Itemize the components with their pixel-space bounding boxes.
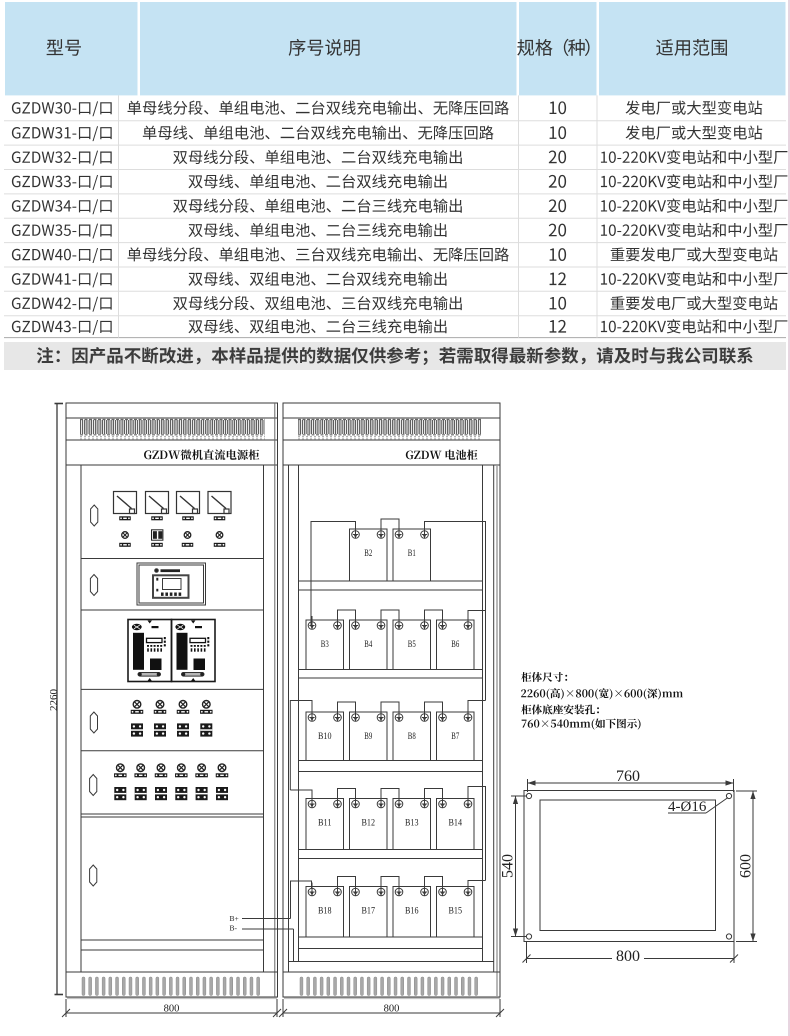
svg-text:800: 800 (164, 1004, 180, 1015)
svg-text:B5: B5 (408, 639, 416, 649)
svg-text:B15: B15 (449, 906, 463, 916)
svg-text:B8: B8 (408, 731, 416, 741)
svg-text:B11: B11 (318, 818, 332, 828)
svg-text:B16: B16 (405, 906, 419, 916)
svg-text:B2: B2 (364, 548, 372, 558)
svg-text:B18: B18 (318, 906, 332, 916)
svg-text:2260: 2260 (48, 689, 60, 712)
svg-text:B+: B+ (230, 914, 239, 923)
svg-text:B9: B9 (364, 731, 372, 741)
svg-text:B-: B- (230, 924, 238, 933)
svg-text:800: 800 (384, 1004, 400, 1015)
svg-text:B12: B12 (362, 818, 376, 828)
svg-text:B1: B1 (408, 548, 416, 558)
svg-text:B14: B14 (449, 818, 463, 828)
svg-text:B13: B13 (405, 818, 419, 828)
svg-text:B4: B4 (364, 639, 372, 649)
svg-text:B7: B7 (451, 731, 459, 741)
svg-text:540: 540 (500, 854, 517, 878)
svg-text:B17: B17 (362, 906, 376, 916)
svg-text:B10: B10 (318, 731, 332, 741)
svg-text:B6: B6 (451, 639, 459, 649)
svg-text:800: 800 (616, 948, 640, 965)
svg-text:760: 760 (616, 768, 640, 785)
svg-text:600: 600 (738, 854, 755, 878)
svg-text:B3: B3 (321, 639, 329, 649)
